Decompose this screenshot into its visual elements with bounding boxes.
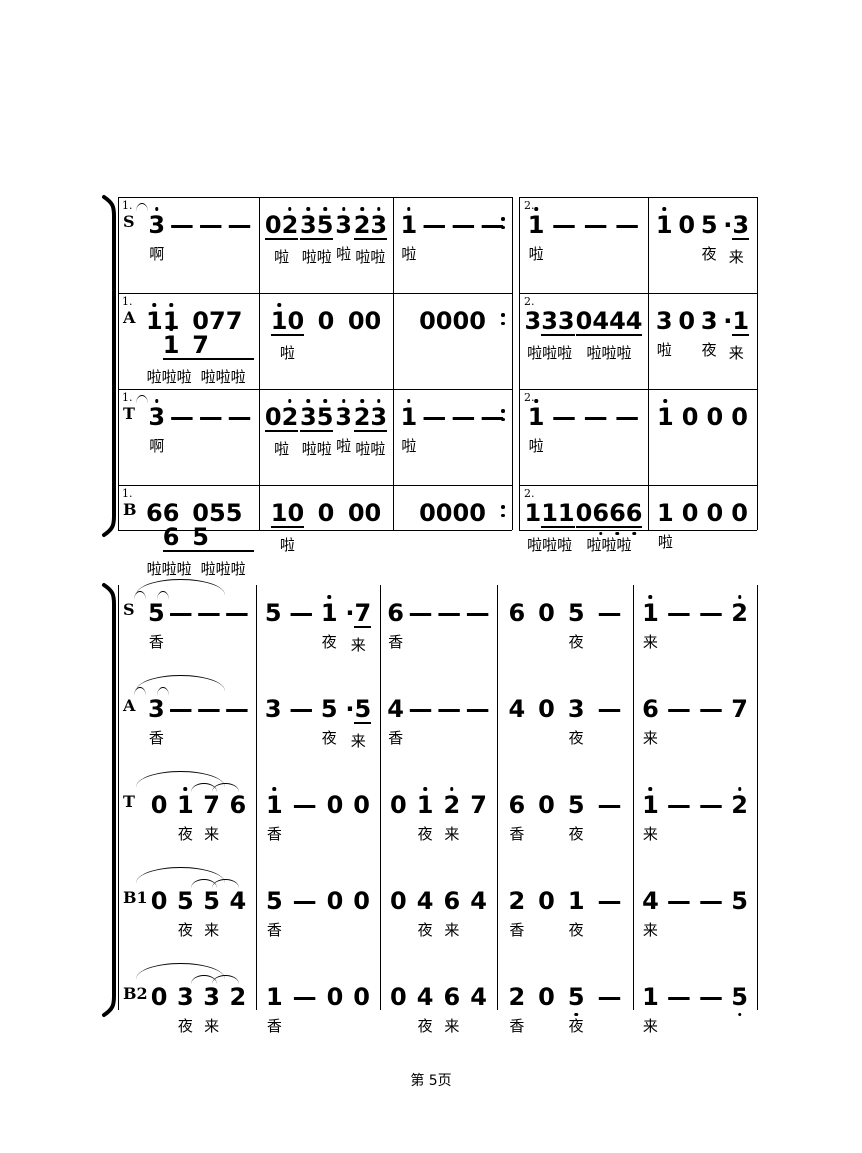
measure: 01夜2来7 bbox=[380, 777, 497, 873]
octave-dot-above-icon bbox=[664, 399, 668, 403]
note-char: — bbox=[197, 697, 221, 721]
note-token: 0555 bbox=[192, 495, 254, 552]
note-char: 4 bbox=[626, 309, 643, 333]
note-lyric-unit: 5夜 bbox=[568, 595, 585, 650]
measure-content: 1来——2 bbox=[633, 777, 757, 842]
note-token: 6 bbox=[642, 691, 659, 721]
lyric-syllable: 香 bbox=[388, 634, 403, 650]
note-char: 0 bbox=[436, 309, 453, 333]
note-char: 4 bbox=[470, 889, 487, 913]
note-lyric-unit: 333啦啦啦 bbox=[525, 303, 575, 361]
measure-content: 04夜6来4 bbox=[380, 873, 497, 938]
note-token: 5 bbox=[265, 595, 282, 625]
lyric-syllable: 啦 bbox=[657, 342, 672, 358]
measure-content: 111啦啦啦0666啦啦啦 bbox=[519, 485, 648, 553]
rhythm-underline: 11 bbox=[541, 501, 574, 528]
staff-line bbox=[118, 530, 512, 531]
note-lyric-unit: 1啦 bbox=[401, 399, 418, 454]
note-char: 0 bbox=[265, 213, 282, 237]
note-lyric-unit: — bbox=[409, 595, 433, 650]
note-token: 02 bbox=[265, 399, 298, 432]
note-token: 35 bbox=[300, 207, 333, 240]
note-lyric-unit: — bbox=[228, 207, 252, 262]
barline bbox=[757, 197, 758, 530]
note-char: — bbox=[466, 601, 490, 625]
note-lyric-unit: 3啦 bbox=[335, 399, 352, 454]
note-char: 2 bbox=[230, 985, 247, 1009]
repeat-dot-icon bbox=[501, 322, 505, 326]
lyric-syllable: 夜 bbox=[418, 922, 433, 938]
note-char: 6 bbox=[444, 985, 461, 1009]
note-lyric-unit: — bbox=[667, 595, 691, 650]
note-token: 00 bbox=[348, 495, 381, 525]
note-char: 3 bbox=[203, 985, 220, 1009]
note-token: — bbox=[293, 979, 317, 1009]
staff-line bbox=[519, 293, 757, 294]
note-char: 0 bbox=[151, 889, 168, 913]
note-char: — bbox=[466, 697, 490, 721]
lyric-syllable: 啦啦 bbox=[355, 441, 385, 457]
note-char: 6 bbox=[387, 601, 404, 625]
note-lyric-unit: 666啦啦啦 bbox=[146, 495, 192, 577]
note-lyric-unit: — bbox=[584, 399, 608, 454]
note-token: — bbox=[437, 595, 461, 625]
note-lyric-unit: 3夜 bbox=[177, 979, 194, 1034]
note-lyric-unit: 0 bbox=[538, 787, 555, 842]
measure: 1啦——— bbox=[519, 389, 648, 485]
repeat-dots bbox=[501, 505, 505, 517]
measure-content: 111啦啦啦0777啦啦啦 bbox=[118, 293, 259, 385]
part-row: A3香———3—5夜·5来4香———403夜—6来——7 bbox=[118, 681, 757, 777]
note-char: 2 bbox=[354, 213, 371, 237]
measure: 10啦000 bbox=[259, 293, 393, 389]
note-lyric-unit: 0 bbox=[707, 495, 724, 550]
octave-dot-above-icon bbox=[407, 399, 411, 403]
note-lyric-unit: — bbox=[170, 399, 194, 454]
octave-dot-above-icon bbox=[649, 787, 653, 791]
note-char: 0 bbox=[151, 985, 168, 1009]
note-char: 1 bbox=[266, 985, 283, 1009]
note-char: — bbox=[409, 601, 433, 625]
note-char: — bbox=[615, 405, 639, 429]
note-char: · bbox=[345, 697, 354, 721]
measure-content: 02啦35啦啦3啦23啦啦 bbox=[259, 389, 393, 457]
note-token: 0777 bbox=[192, 303, 254, 360]
note-char: — bbox=[199, 405, 223, 429]
octave-dot-below-icon bbox=[738, 1013, 742, 1017]
system-1: S3啊———02啦35啦啦3啦23啦啦1啦———1啦———105夜·3来1.2.… bbox=[118, 197, 757, 569]
note-lyric-unit: 3来 bbox=[203, 979, 220, 1034]
note-char: 1 bbox=[541, 501, 558, 525]
octave-dot-above-icon bbox=[277, 303, 281, 307]
note-lyric-unit: 5夜 bbox=[568, 787, 585, 842]
note-token: 1 bbox=[642, 979, 659, 1009]
rhythm-underline: 5 bbox=[354, 697, 371, 724]
note-char: 1 bbox=[656, 213, 673, 237]
barline bbox=[497, 585, 498, 1010]
note-token: 5 bbox=[321, 691, 338, 721]
note-lyric-unit: ·1来 bbox=[723, 303, 749, 361]
note-token: 1 bbox=[642, 787, 659, 817]
note-lyric-unit: 3啦 bbox=[335, 207, 352, 262]
note-lyric-unit: 0 bbox=[390, 787, 407, 842]
note-lyric-unit: — bbox=[615, 399, 639, 454]
note-char: 2 bbox=[354, 405, 371, 429]
note-char: 6 bbox=[508, 601, 525, 625]
system1-brace-icon bbox=[99, 194, 119, 538]
octave-dot-below-icon bbox=[574, 1013, 578, 1017]
measure: 1香—00 bbox=[256, 777, 380, 873]
note-char: 3 bbox=[335, 405, 352, 429]
rhythm-underline: 35 bbox=[300, 405, 333, 432]
note-char: 5 bbox=[321, 697, 338, 721]
note-token: 0 bbox=[353, 787, 370, 817]
note-token: 1 bbox=[417, 787, 434, 817]
note-lyric-unit: — bbox=[480, 399, 504, 454]
note-lyric-unit: — bbox=[169, 595, 193, 650]
measure: 1000 bbox=[648, 389, 757, 485]
note-token: 23 bbox=[354, 207, 387, 240]
note-char: — bbox=[169, 697, 193, 721]
note-char: — bbox=[667, 697, 691, 721]
octave-dot-above-icon bbox=[423, 787, 427, 791]
staff-line bbox=[519, 197, 757, 198]
octave-dot-above-icon bbox=[155, 207, 159, 211]
lyric-syllable: 夜 bbox=[178, 922, 193, 938]
lyric-syllable: 夜 bbox=[702, 246, 717, 262]
part-row: B203夜3来21香—0004夜6来42香05夜—1来——5 bbox=[118, 969, 757, 1065]
note-char: 6 bbox=[146, 501, 163, 525]
measure-content: 4来——5 bbox=[633, 873, 757, 938]
measure-content: 1啦——— bbox=[519, 389, 648, 454]
barline bbox=[118, 585, 119, 1010]
note-char: 0 bbox=[287, 309, 304, 333]
note-char: 3 bbox=[525, 309, 542, 333]
staff-line bbox=[118, 485, 512, 486]
note-char: 1 bbox=[528, 213, 545, 237]
note-char: 5 bbox=[317, 213, 334, 237]
note-char: — bbox=[699, 697, 723, 721]
note-token: 1 bbox=[401, 399, 418, 429]
note-token: — bbox=[169, 691, 193, 721]
note-lyric-unit: — bbox=[437, 595, 461, 650]
note-token: 4 bbox=[417, 883, 434, 913]
lyric-syllable: 香 bbox=[509, 1018, 524, 1034]
rhythm-underline: 7 bbox=[354, 601, 371, 628]
note-lyric-unit: 0 bbox=[731, 495, 748, 550]
note-char: 5 bbox=[265, 601, 282, 625]
note-char: 0 bbox=[707, 405, 724, 429]
volta-label: 2. bbox=[524, 295, 535, 308]
note-char: 5 bbox=[177, 889, 194, 913]
lyric-syllable: 啦啦 bbox=[302, 441, 332, 457]
note-char: 2 bbox=[508, 889, 525, 913]
measure-content: 403夜— bbox=[497, 681, 633, 746]
repeat-dot-icon bbox=[501, 418, 505, 422]
note-token: 1 bbox=[266, 787, 283, 817]
measure: 10啦000 bbox=[259, 485, 393, 577]
note-token: 5 bbox=[701, 207, 718, 237]
note-lyric-unit: 2 bbox=[731, 787, 748, 842]
note-char: 6 bbox=[642, 697, 659, 721]
note-char: 2 bbox=[444, 793, 461, 817]
note-char: 1 bbox=[163, 333, 180, 357]
note-char: 6 bbox=[230, 793, 247, 817]
note-char: 0 bbox=[365, 501, 382, 525]
note-char: 7 bbox=[226, 309, 243, 333]
note-lyric-unit: 1来 bbox=[642, 595, 659, 650]
note-token: — bbox=[228, 399, 252, 429]
note-lyric-unit: 23啦啦 bbox=[354, 399, 387, 457]
note-token: 02 bbox=[265, 207, 298, 240]
octave-dot-above-icon bbox=[307, 207, 311, 211]
note-char: 2 bbox=[282, 213, 299, 237]
note-lyric-unit: 0 bbox=[151, 787, 168, 842]
note-lyric-unit: 0000 bbox=[419, 495, 486, 550]
note-token: — bbox=[228, 207, 252, 237]
lyric-syllable: 啦 bbox=[336, 438, 351, 454]
lyric-syllable: 来 bbox=[643, 730, 658, 746]
note-char: 0 bbox=[678, 309, 695, 333]
note-token: — bbox=[199, 399, 223, 429]
note-char: 0 bbox=[348, 309, 365, 333]
note-char: 0 bbox=[327, 793, 344, 817]
note-char: 3 bbox=[656, 309, 673, 333]
lyric-syllable: 香 bbox=[509, 826, 524, 842]
slur-arc bbox=[136, 395, 148, 404]
note-char: 0 bbox=[287, 501, 304, 525]
note-char: — bbox=[667, 889, 691, 913]
measure: 666啦啦啦0555啦啦啦 bbox=[118, 485, 259, 577]
note-lyric-unit: 3夜 bbox=[568, 691, 585, 746]
octave-dot-above-icon bbox=[169, 303, 173, 307]
note-token: 10 bbox=[271, 303, 304, 336]
measure-content: 1啦——— bbox=[393, 197, 512, 262]
octave-dot-above-icon bbox=[323, 207, 327, 211]
volta-label: 1. bbox=[122, 295, 133, 308]
note-char: 4 bbox=[387, 697, 404, 721]
measure-content: 0000 bbox=[393, 485, 512, 550]
note-char: 1 bbox=[657, 501, 674, 525]
rhythm-underline: 0555 bbox=[192, 501, 254, 552]
note-token: 0 bbox=[327, 979, 344, 1009]
lyric-syllable: 啦啦啦 bbox=[201, 561, 246, 577]
note-token: — bbox=[451, 399, 475, 429]
note-char: — bbox=[293, 889, 317, 913]
measure-content: 105夜·3来 bbox=[648, 197, 757, 265]
note-lyric-unit: 3啊 bbox=[148, 207, 165, 262]
note-lyric-unit: — bbox=[699, 979, 723, 1034]
note-lyric-unit: 4 bbox=[230, 883, 247, 938]
note-lyric-unit: — bbox=[667, 979, 691, 1034]
measure: 1啦——— bbox=[519, 197, 648, 293]
note-lyric-unit: 00 bbox=[348, 495, 381, 550]
measure: 02啦35啦啦3啦23啦啦 bbox=[259, 197, 393, 293]
slur-arc bbox=[136, 579, 225, 595]
note-token: — bbox=[451, 207, 475, 237]
note-char: — bbox=[552, 213, 576, 237]
lyric-syllable: 夜 bbox=[569, 1018, 584, 1034]
note-token: — bbox=[584, 399, 608, 429]
note-char: 0 bbox=[538, 889, 555, 913]
note-char: 1 bbox=[525, 501, 542, 525]
note-char: 3 bbox=[541, 309, 558, 333]
note-lyric-unit: 5香 bbox=[148, 595, 165, 650]
note-token: — bbox=[293, 883, 317, 913]
note-token: 0 bbox=[538, 691, 555, 721]
note-lyric-unit: 1来 bbox=[642, 787, 659, 842]
note-token: 0 bbox=[538, 979, 555, 1009]
note-char: 3 bbox=[370, 213, 387, 237]
note-lyric-unit: 1来 bbox=[642, 979, 659, 1034]
barline bbox=[512, 197, 513, 530]
octave-dot-below-icon bbox=[616, 532, 620, 536]
note-token: 3 bbox=[148, 399, 165, 429]
note-char: 1 bbox=[642, 601, 659, 625]
note-lyric-unit: 0 bbox=[327, 883, 344, 938]
rhythm-underline: 10 bbox=[271, 309, 304, 336]
lyric-syllable: 啦 bbox=[336, 246, 351, 262]
note-char: 0 bbox=[678, 213, 695, 237]
note-char: — bbox=[289, 601, 313, 625]
octave-dot-above-icon bbox=[377, 399, 381, 403]
note-token: 4 bbox=[470, 979, 487, 1009]
note-token: 1 bbox=[321, 595, 338, 625]
note-token: — bbox=[699, 883, 723, 913]
note-token: 5 bbox=[568, 787, 585, 817]
measure-content: 1啦——— bbox=[519, 197, 648, 262]
rhythm-underline: 35 bbox=[300, 213, 333, 240]
note-lyric-unit: 6来 bbox=[444, 979, 461, 1034]
lyric-syllable: 夜 bbox=[569, 634, 584, 650]
octave-dot-above-icon bbox=[288, 399, 292, 403]
note-char: 1 bbox=[266, 793, 283, 817]
page-number: 第 5页 bbox=[0, 1070, 862, 1090]
note-token: 3 bbox=[568, 691, 585, 721]
lyric-syllable: 啦啦啦 bbox=[527, 537, 572, 553]
note-lyric-unit: — bbox=[225, 691, 249, 746]
note-token: — bbox=[409, 595, 433, 625]
note-char: 7 bbox=[209, 309, 226, 333]
note-lyric-unit: — bbox=[480, 207, 504, 262]
note-token: 00 bbox=[348, 303, 381, 333]
note-token: 0 bbox=[707, 495, 724, 525]
note-char: 1 bbox=[417, 793, 434, 817]
note-char: 5 bbox=[568, 793, 585, 817]
note-token: — bbox=[225, 691, 249, 721]
note-lyric-unit: 0 bbox=[390, 979, 407, 1034]
note-char: — bbox=[451, 405, 475, 429]
note-lyric-unit: — bbox=[699, 595, 723, 650]
note-token: 4 bbox=[417, 979, 434, 1009]
note-token: — bbox=[598, 979, 622, 1009]
measure: 2香01夜— bbox=[497, 873, 633, 969]
measure-content: 333啦啦啦0444啦啦啦 bbox=[519, 293, 648, 361]
note-token: 0 bbox=[151, 979, 168, 1009]
note-token: ·5 bbox=[345, 691, 371, 724]
note-lyric-unit: 1 bbox=[657, 399, 674, 454]
measure-content: 4香——— bbox=[380, 681, 497, 746]
note-token: 0 bbox=[390, 883, 407, 913]
lyric-syllable: 啊 bbox=[149, 246, 164, 262]
note-token: — bbox=[699, 787, 723, 817]
part-row: A111啦啦啦0777啦啦啦10啦0000000333啦啦啦0444啦啦啦3啦0… bbox=[118, 293, 757, 389]
note-lyric-unit: 0 bbox=[318, 495, 335, 550]
lyric-syllable: 香 bbox=[149, 634, 164, 650]
lyric-syllable: 夜 bbox=[322, 730, 337, 746]
lyric-syllable: 啦啦 bbox=[302, 249, 332, 265]
note-char: 1 bbox=[146, 309, 163, 333]
note-char: — bbox=[598, 601, 622, 625]
rhythm-underline: 0666 bbox=[576, 501, 643, 528]
note-lyric-unit: — bbox=[169, 691, 193, 746]
note-token: — bbox=[289, 595, 313, 625]
lyric-syllable: 香 bbox=[388, 730, 403, 746]
note-lyric-unit: 0 bbox=[390, 883, 407, 938]
rhythm-underline: 0777 bbox=[192, 309, 254, 360]
note-char: 1 bbox=[642, 985, 659, 1009]
note-lyric-unit: 5夜 bbox=[321, 691, 338, 746]
note-lyric-unit: 1夜 bbox=[321, 595, 338, 650]
note-token: — bbox=[667, 787, 691, 817]
note-lyric-unit: 0 bbox=[678, 303, 695, 358]
measure-content: 605夜— bbox=[497, 585, 633, 650]
note-char: — bbox=[584, 405, 608, 429]
system-2: S5香———5—1夜·7来6香———605夜—1来——2A3香———3—5夜·5… bbox=[118, 585, 757, 1065]
measure-content: 10啦000 bbox=[259, 293, 393, 361]
staff-line bbox=[118, 293, 512, 294]
note-char: 5 bbox=[209, 501, 226, 525]
note-lyric-unit: 35啦啦 bbox=[300, 207, 333, 265]
note-char: — bbox=[451, 213, 475, 237]
note-char: 0 bbox=[353, 889, 370, 913]
note-lyric-unit: 7 bbox=[470, 787, 487, 842]
note-char: 0 bbox=[538, 697, 555, 721]
octave-dot-above-icon bbox=[342, 207, 346, 211]
lyric-syllable: 啦啦啦 bbox=[201, 369, 246, 385]
volta-label: 1. bbox=[122, 199, 133, 212]
note-char: 0 bbox=[576, 309, 593, 333]
lyric-syllable: 来 bbox=[351, 637, 366, 653]
note-token: 0 bbox=[538, 595, 555, 625]
note-char: 0 bbox=[318, 309, 335, 333]
lyric-syllable: 啦 bbox=[529, 246, 544, 262]
staff-line bbox=[519, 485, 757, 486]
note-lyric-unit: 6 bbox=[230, 787, 247, 842]
note-char: — bbox=[667, 601, 691, 625]
slur-arc bbox=[136, 203, 148, 212]
note-token: — bbox=[598, 883, 622, 913]
note-token: 111 bbox=[146, 303, 192, 360]
staff-line bbox=[118, 389, 512, 390]
barline bbox=[118, 197, 119, 530]
lyric-syllable: 夜 bbox=[569, 922, 584, 938]
octave-dot-above-icon bbox=[273, 787, 277, 791]
lyric-syllable: 来 bbox=[444, 1018, 459, 1034]
note-char: 0 bbox=[365, 309, 382, 333]
note-char: 7 bbox=[354, 601, 371, 625]
note-lyric-unit: — bbox=[409, 691, 433, 746]
note-char: 0 bbox=[469, 501, 486, 525]
note-lyric-unit: 35啦啦 bbox=[300, 399, 333, 457]
measure-content: 1啦——— bbox=[393, 389, 512, 454]
note-token: — bbox=[584, 207, 608, 237]
note-lyric-unit: 4香 bbox=[387, 691, 404, 746]
note-char: 7 bbox=[731, 697, 748, 721]
note-char: 7 bbox=[203, 793, 220, 817]
note-lyric-unit: 00 bbox=[348, 303, 381, 358]
note-lyric-unit: 5来 bbox=[203, 883, 220, 938]
